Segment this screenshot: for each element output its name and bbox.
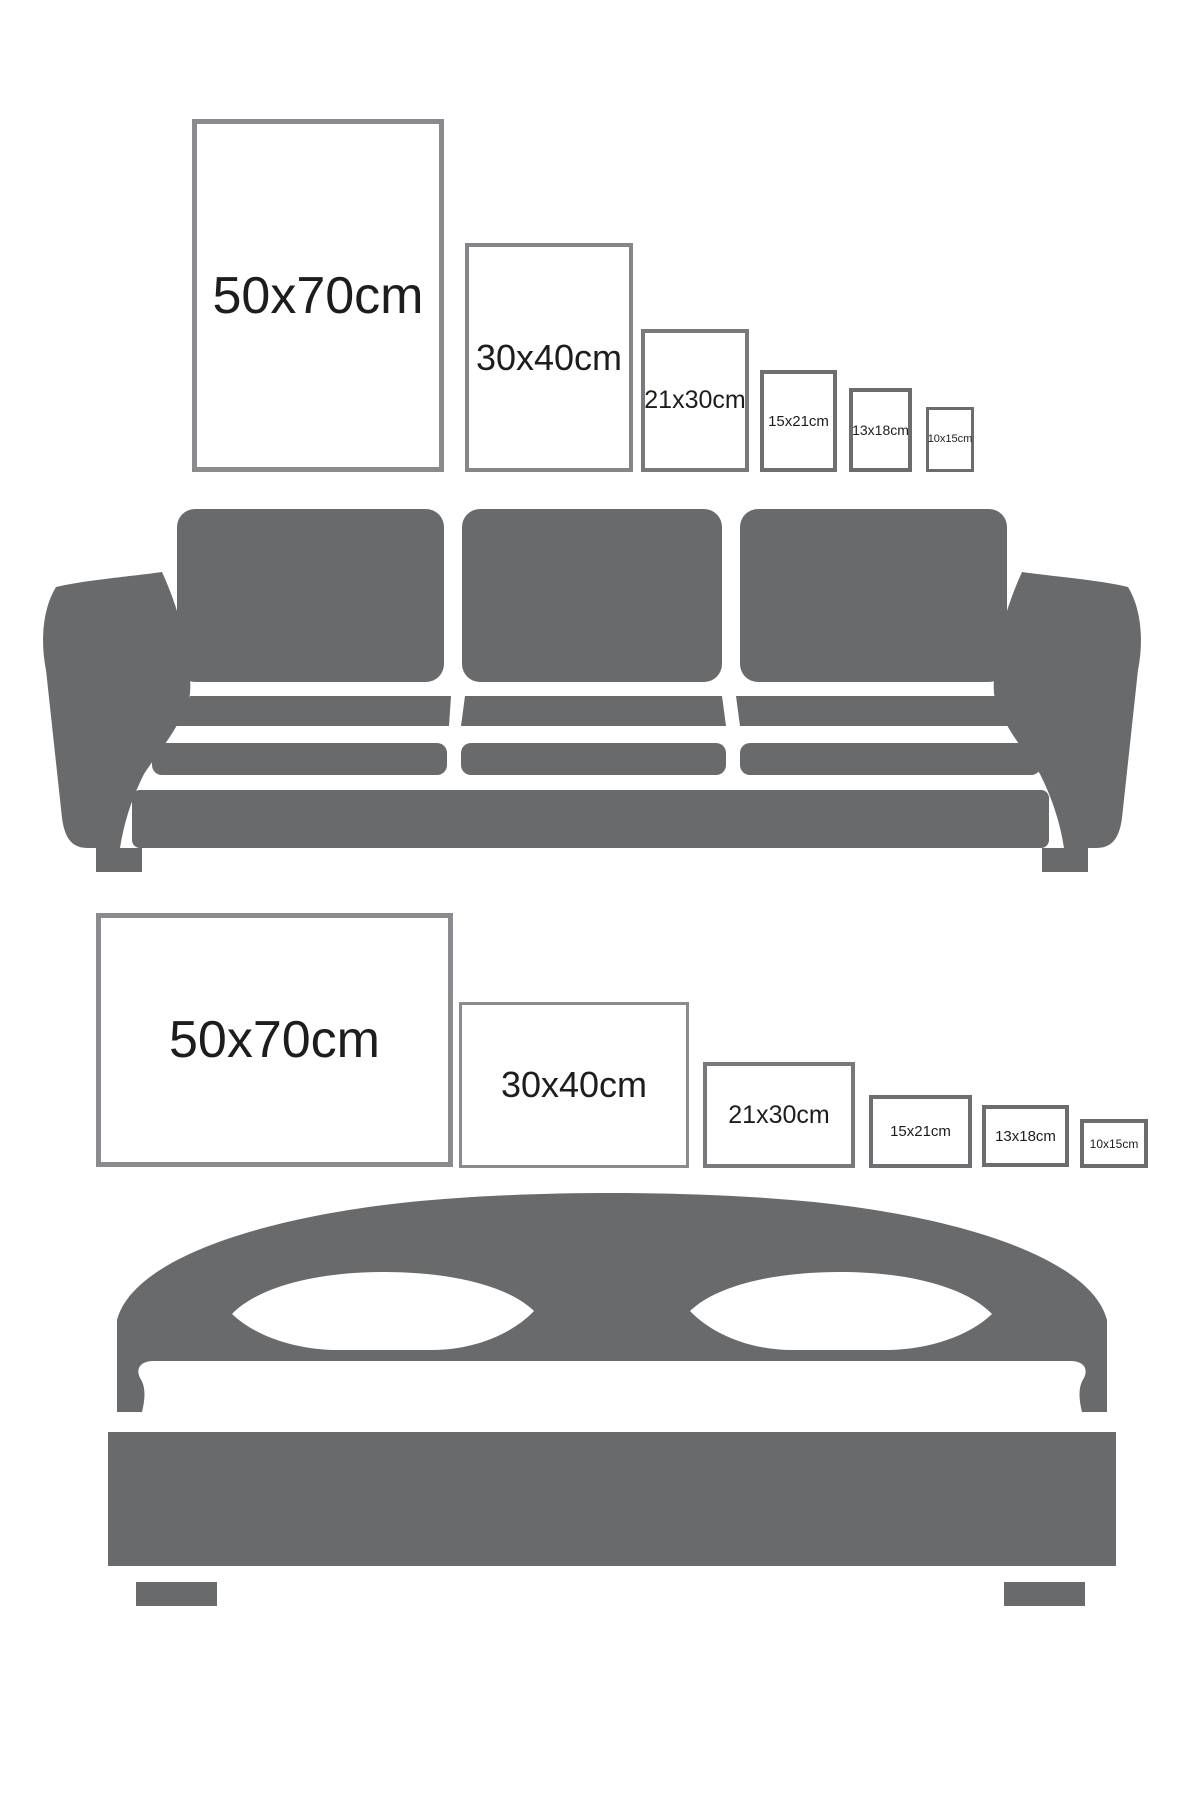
frame-landscape-10x15cm: 10x15cm [1080, 1119, 1148, 1168]
bed-illustration [108, 1193, 1116, 1606]
frame-landscape-50x70cm: 50x70cm [96, 913, 453, 1167]
bed-headboard [117, 1193, 1107, 1412]
sofa-seat-cushion-middle [461, 743, 726, 775]
sofa-base [132, 790, 1049, 848]
frame-size-label: 50x70cm [169, 1014, 380, 1066]
frame-size-label: 15x21cm [890, 1124, 951, 1139]
frame-size-label: 30x40cm [501, 1067, 647, 1103]
sofa-back-cushion-middle [462, 509, 722, 682]
sofa-foot-right [1042, 848, 1088, 872]
size-guide-canvas: 50x70cm30x40cm21x30cm15x21cm13x18cm10x15… [0, 0, 1200, 1800]
frame-size-label: 21x30cm [644, 388, 745, 413]
bed-foot-right [1004, 1582, 1085, 1606]
bed-icon [100, 1190, 1120, 1610]
frame-size-label: 50x70cm [213, 270, 424, 322]
frame-portrait-15x21cm: 15x21cm [760, 370, 837, 472]
frame-portrait-30x40cm: 30x40cm [465, 243, 633, 472]
sofa-illustration [43, 509, 1141, 872]
frame-portrait-13x18cm: 13x18cm [849, 388, 912, 472]
sofa-deck-left [170, 696, 451, 726]
frame-size-label: 13x18cm [852, 423, 909, 437]
frame-landscape-13x18cm: 13x18cm [982, 1105, 1069, 1167]
frame-size-label: 21x30cm [728, 1103, 829, 1128]
frame-portrait-10x15cm: 10x15cm [926, 407, 974, 472]
bed-base [108, 1432, 1116, 1566]
bed-foot-left [136, 1582, 217, 1606]
sofa-deck-right [736, 696, 1035, 726]
frame-size-label: 15x21cm [768, 414, 829, 429]
frame-size-label: 30x40cm [476, 340, 622, 376]
sofa-back-cushion-left [177, 509, 444, 682]
frame-size-label: 10x15cm [1090, 1138, 1139, 1150]
sofa-seat-cushion-left [152, 743, 447, 775]
sofa-icon [40, 500, 1160, 900]
sofa-deck-middle [461, 696, 726, 726]
frame-landscape-21x30cm: 21x30cm [703, 1062, 855, 1168]
sofa-seat-cushion-right [740, 743, 1041, 775]
frame-size-label: 10x15cm [928, 434, 973, 445]
sofa-foot-left [96, 848, 142, 872]
frame-portrait-21x30cm: 21x30cm [641, 329, 749, 472]
frame-portrait-50x70cm: 50x70cm [192, 119, 444, 472]
frame-landscape-30x40cm: 30x40cm [459, 1002, 689, 1168]
sofa-back-cushion-right [740, 509, 1007, 682]
frame-landscape-15x21cm: 15x21cm [869, 1095, 972, 1168]
frame-size-label: 13x18cm [995, 1129, 1056, 1144]
